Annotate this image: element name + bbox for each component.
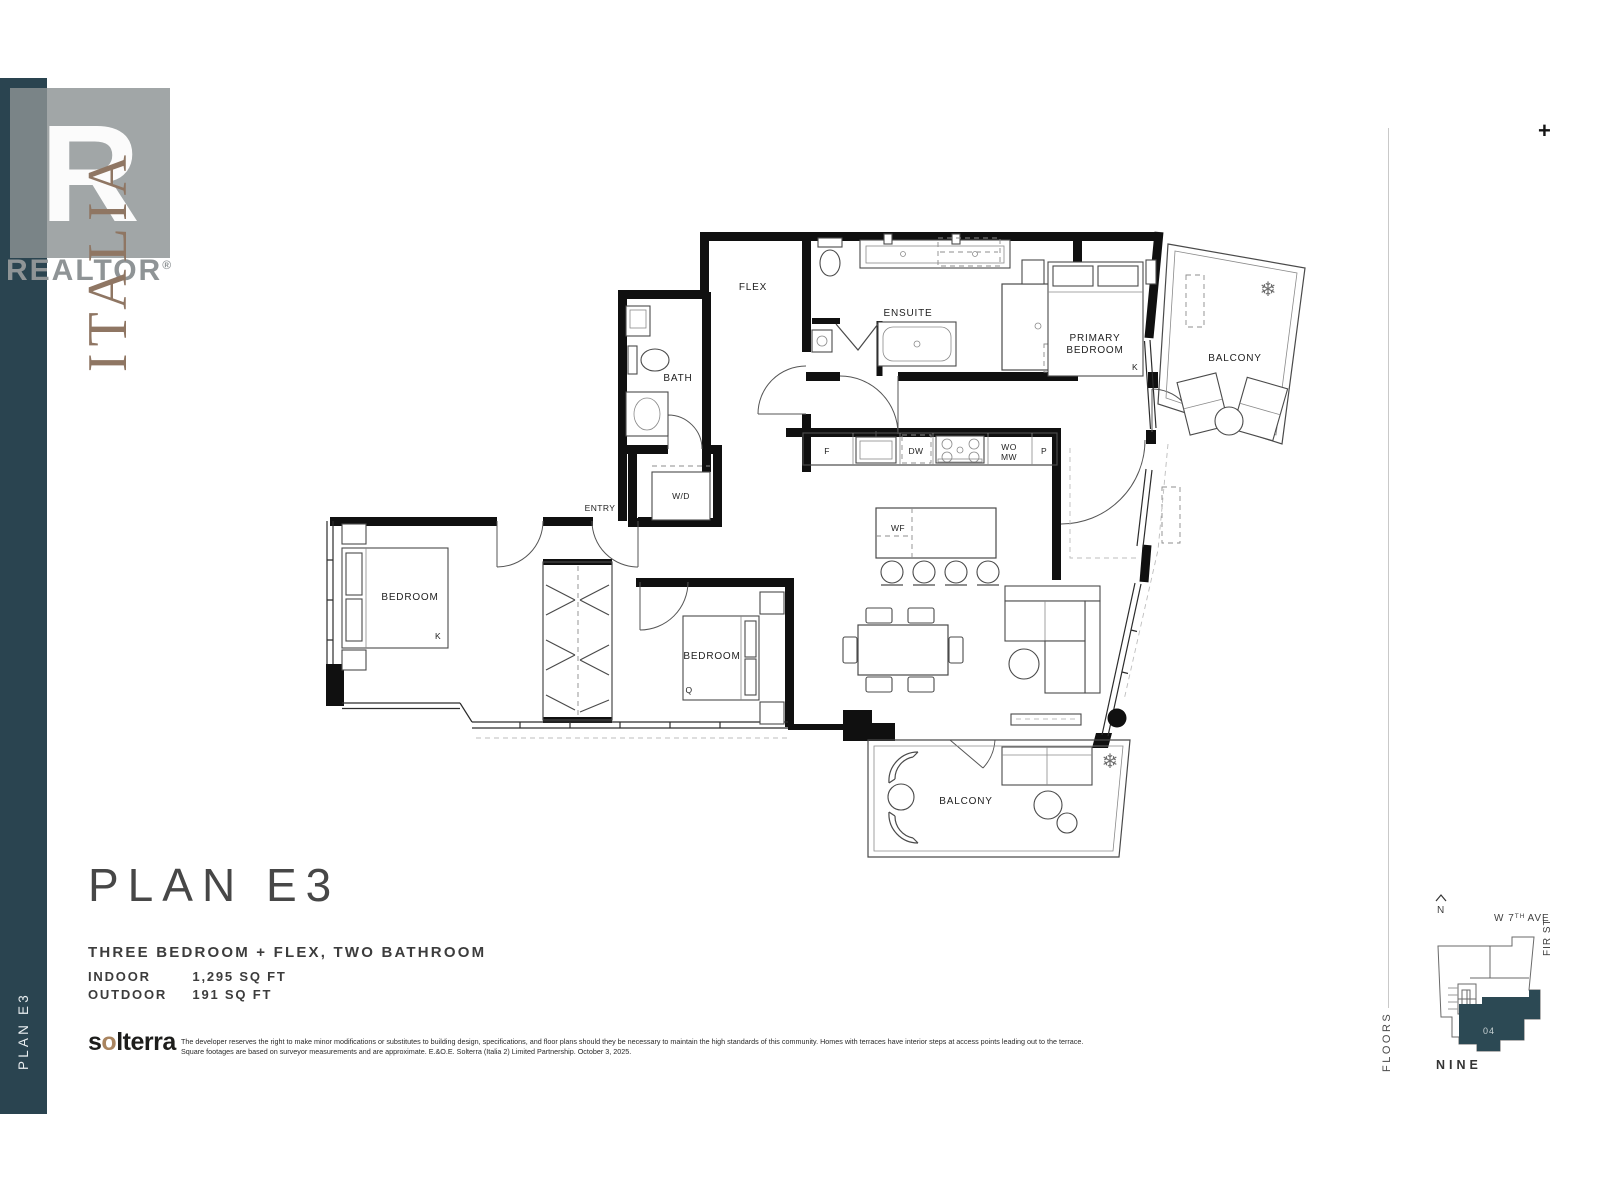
solterra-logo-s: s [88,1028,101,1056]
indoor-value: 1,295 SQ FT [192,969,286,984]
disclaimer-line-2: Square footages are based on surveyor me… [181,1047,1083,1057]
room-label-bedroom-middle: BEDROOM [683,651,740,662]
page-title: PLAN E3 [88,858,340,912]
indoor-label: INDOOR [88,969,187,984]
north-arrow-icon: N [1436,895,1446,916]
key-plan: N W 7THAVE FIR ST 04 [1330,880,1580,1080]
snowflake-icon: ❄ [1260,279,1277,301]
snowflake-icon: ❄ [1102,751,1119,773]
room-label-balcony-top: BALCONY [1208,353,1261,364]
balcony-bottom-outline: ❄ [868,740,1130,857]
brochure-page: PLAN E3 R REALTOR® ITALIA + [0,0,1600,1200]
solterra-logo-rest: lterra [116,1028,176,1056]
floor-plan: ❄ ❄ FLEX BATH ENSUITE PRIMARY BEDROOM K … [300,200,1320,880]
registered-mark: ® [162,258,173,272]
room-label-primary-1: PRIMARY [1070,333,1121,344]
kitchen-island [876,508,999,585]
outdoor-value: 191 SQ FT [192,987,272,1002]
vertical-divider [1388,128,1389,1008]
bed-size-queen: Q [685,685,692,695]
unit-number: 04 [1483,1026,1495,1036]
door-swings [497,324,1195,768]
solterra-logo: solterra [88,1028,176,1057]
bed-size-king-left: K [435,631,441,641]
plan-subtitle: THREE BEDROOM + FLEX, TWO BATHROOM [88,944,486,961]
appliance-label-fridge: F [824,446,830,456]
disclaimer-text: The developer reserves the right to make… [181,1037,1083,1057]
appliance-label-mw: MW [1001,452,1017,462]
dining-table-icon [843,608,963,692]
room-label-entry: ENTRY [585,503,616,513]
ensuite-fixtures [812,234,1074,372]
appliance-label-dw: DW [909,446,924,456]
room-label-balcony-bottom: BALCONY [939,796,992,807]
bed-size-king-primary: K [1132,362,1138,372]
street-label-right: FIR ST [1542,918,1553,956]
disclaimer-line-1: The developer reserves the right to make… [181,1037,1083,1047]
appliance-label-wo: WO [1001,442,1016,452]
room-label-flex: FLEX [739,282,767,293]
outdoor-spec-row: OUTDOOR 191 SQ FT [88,987,272,1002]
room-label-wd: W/D [672,491,690,501]
zoom-plus-icon[interactable]: + [1538,118,1551,144]
primary-bed-icon [1022,260,1156,376]
sidebar-plan-label: PLAN E3 [16,992,31,1070]
room-label-bath: BATH [663,373,692,384]
balcony-top-outline: ❄ [1158,244,1305,444]
svg-text:N: N [1437,905,1445,916]
appliance-label-wf: WF [891,523,905,533]
room-label-ensuite: ENSUITE [884,308,933,319]
room-label-primary-2: BEDROOM [1066,345,1123,356]
bedroom-closets [543,562,612,720]
solterra-logo-o: o [101,1028,116,1056]
appliance-label-pantry: P [1041,446,1047,456]
indoor-spec-row: INDOOR 1,295 SQ FT [88,969,287,984]
italia-wordmark: ITALIA [76,126,140,394]
bath-fixtures [626,306,669,436]
room-label-bedroom-left: BEDROOM [381,592,438,603]
outdoor-label: OUTDOOR [88,987,187,1002]
